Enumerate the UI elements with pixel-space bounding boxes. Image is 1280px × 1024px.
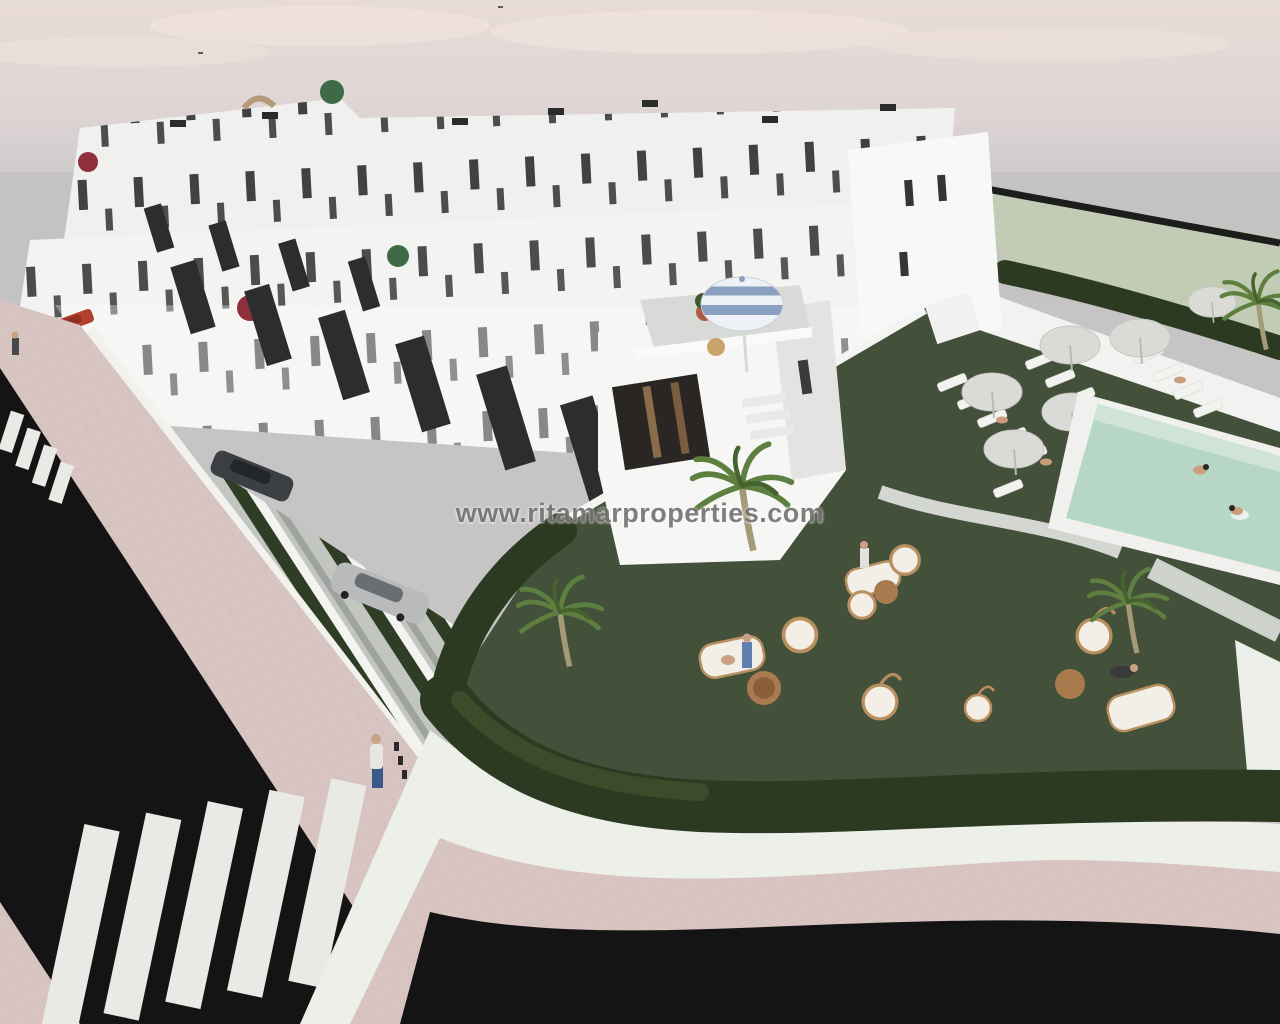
round-table [874,580,898,604]
scene-canvas [0,0,1280,1024]
side-table [707,338,725,356]
pedestrian [12,332,20,356]
green-parasol-icon [320,80,344,104]
curved-road [400,912,1280,1024]
red-umbrella-icon [78,152,98,172]
green-parasol-icon [387,245,409,267]
round-table [1055,669,1085,699]
render-image: www.ritamarproperties.com [0,0,1280,1024]
table-top [753,677,775,699]
